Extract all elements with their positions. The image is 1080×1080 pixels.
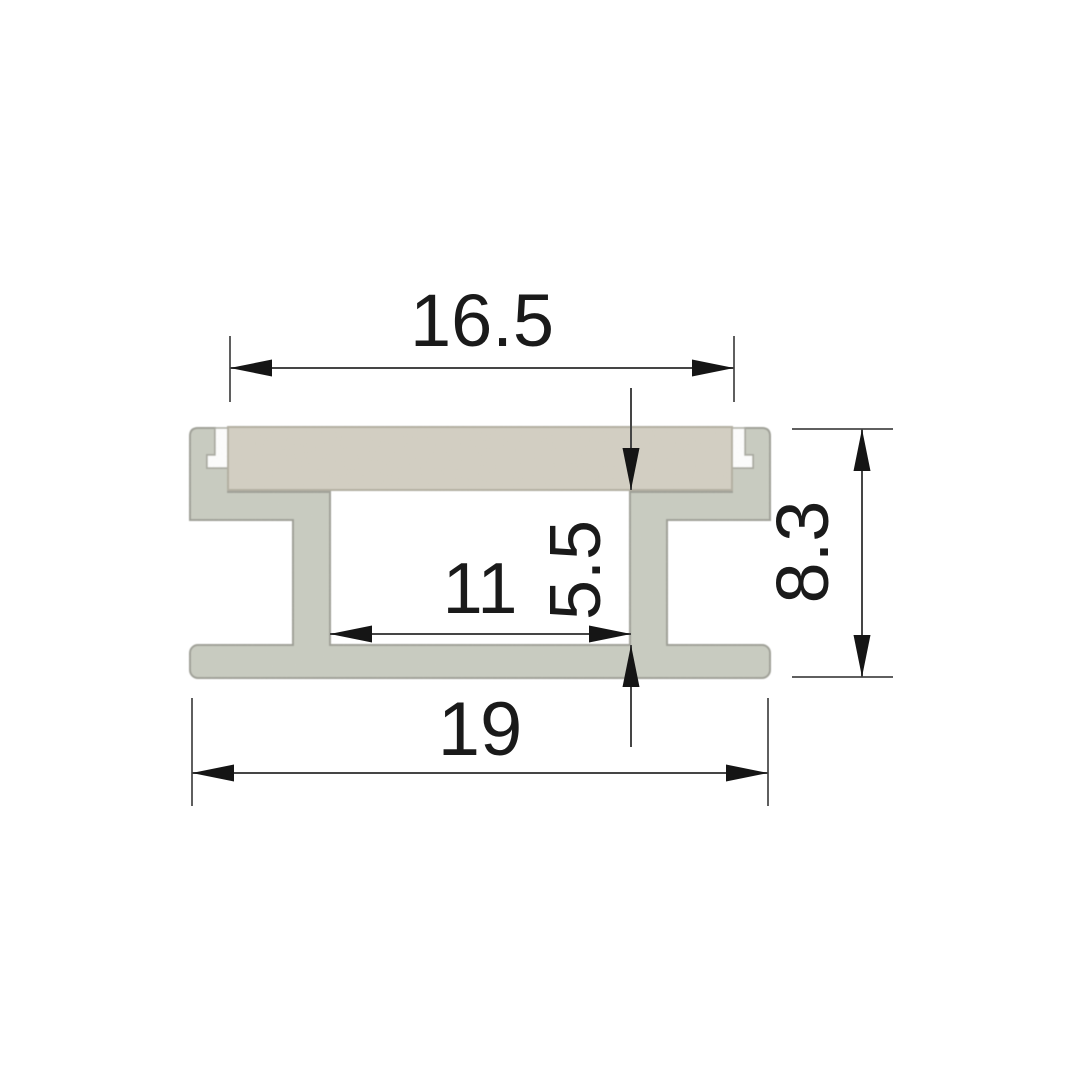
profile-bottom-flange — [190, 645, 770, 678]
web-flange-seam-patch-right — [631, 642, 666, 650]
web-flange-seam-patch-left — [294, 642, 329, 650]
dimension-value: 19 — [438, 687, 523, 772]
dimension-value: 11 — [443, 549, 518, 629]
dimension-value: 5.5 — [536, 520, 616, 620]
cover-plate — [228, 427, 732, 490]
dimension-value: 8.3 — [761, 501, 844, 604]
technical-drawing: 16.5 11 5.5 8.3 — [0, 0, 1080, 1080]
dimension-value: 16.5 — [410, 279, 554, 362]
